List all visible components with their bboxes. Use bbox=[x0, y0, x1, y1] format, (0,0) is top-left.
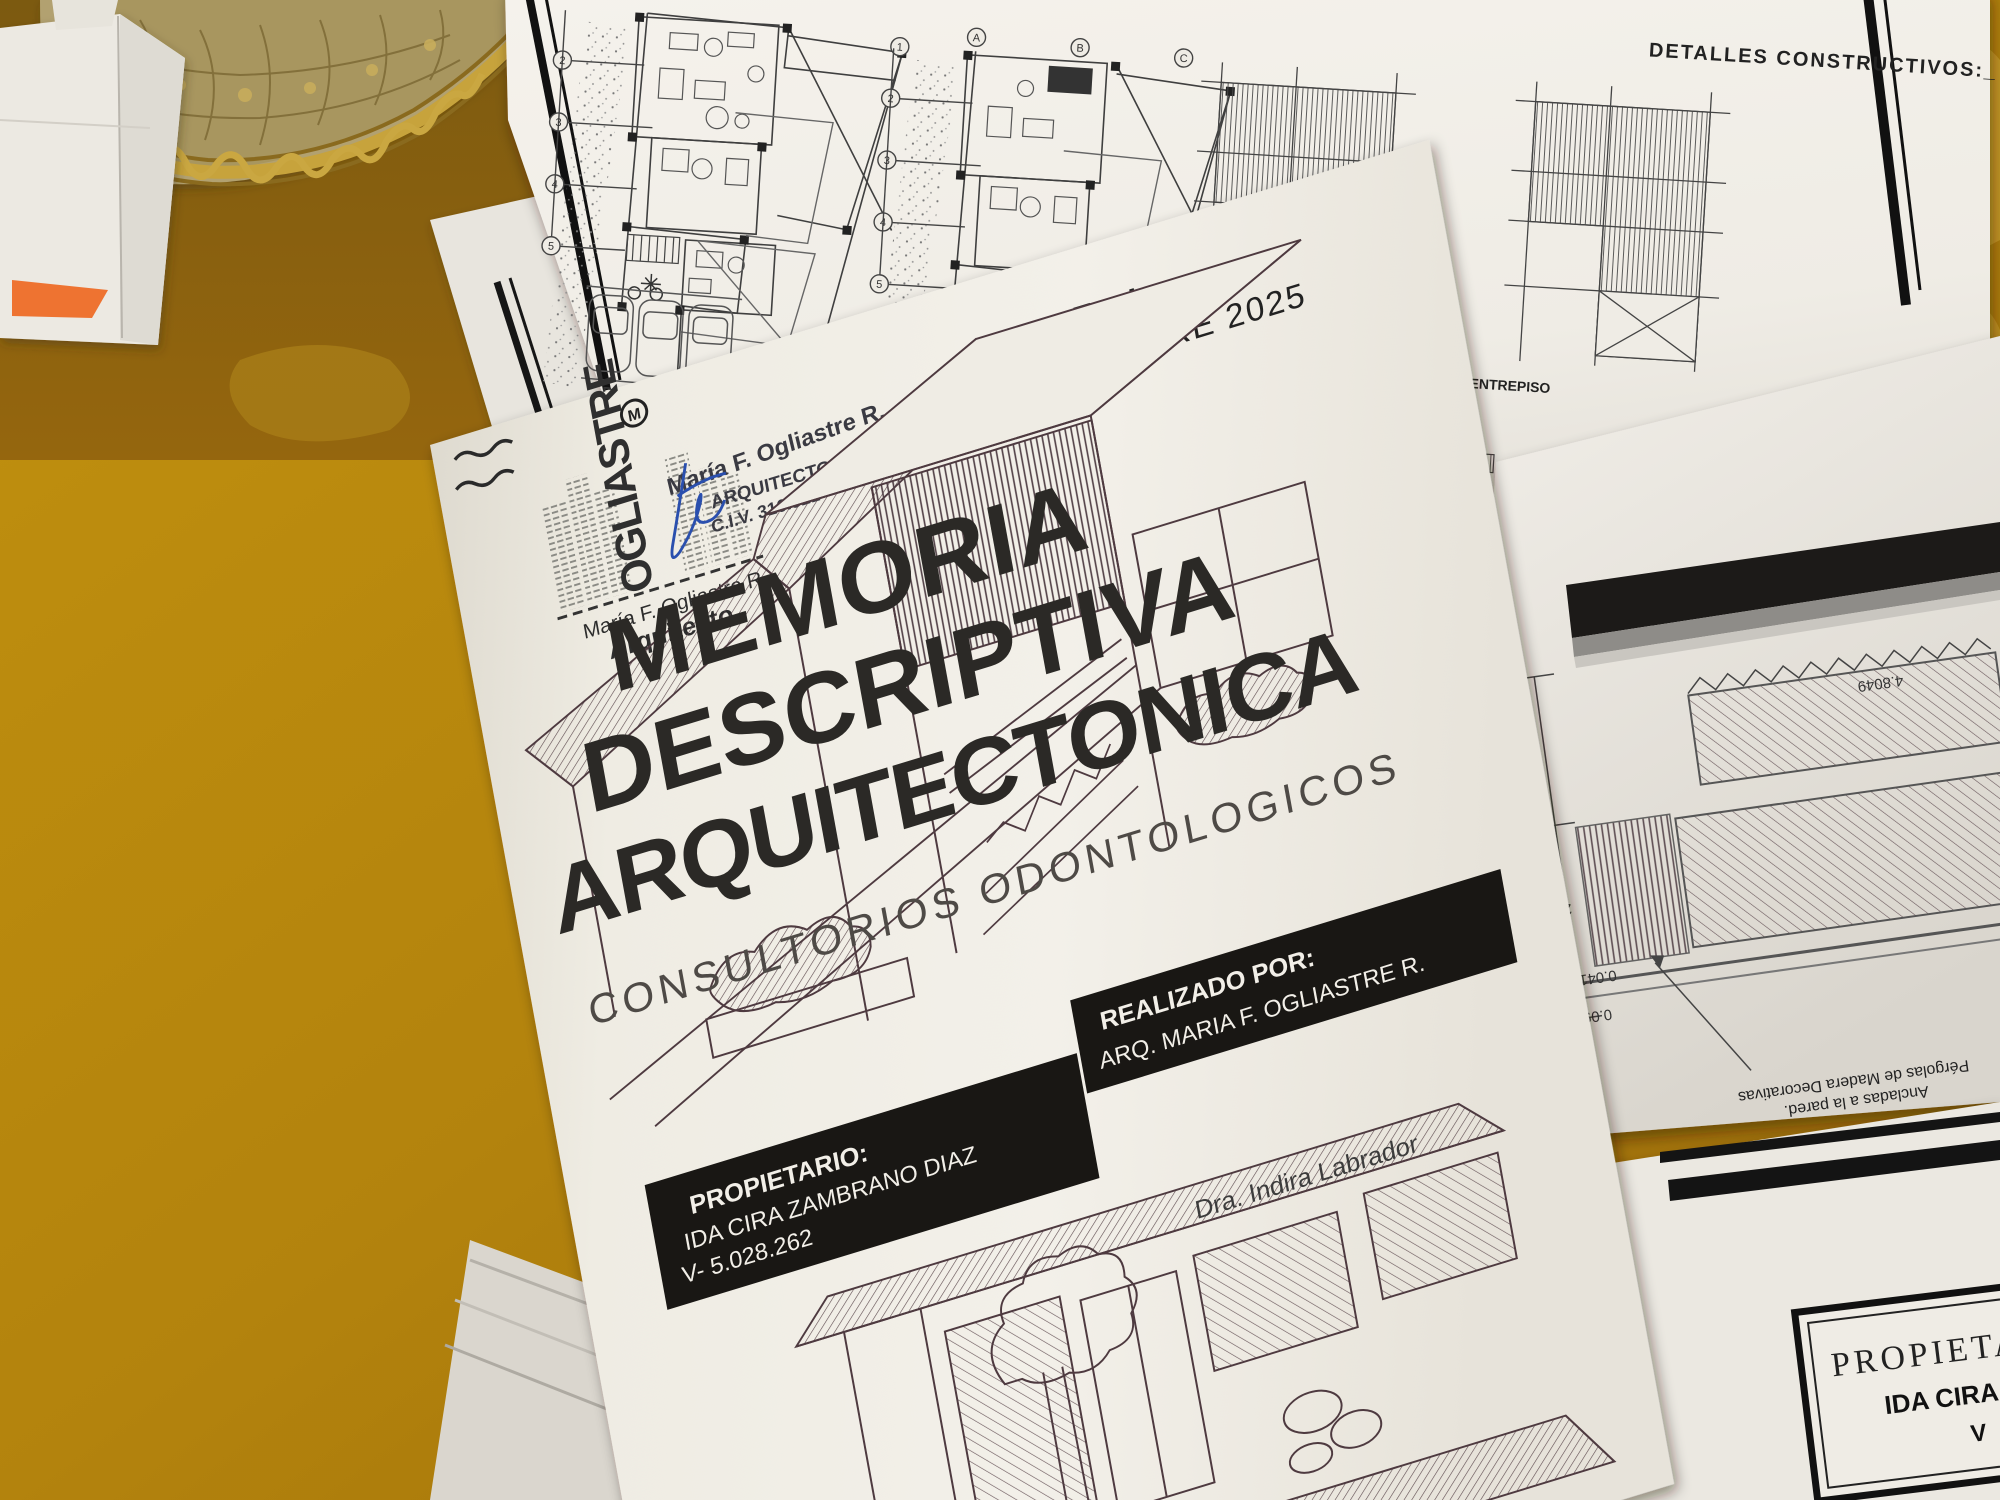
svg-text:C: C bbox=[1179, 53, 1188, 65]
svg-text:2: 2 bbox=[887, 93, 894, 105]
svg-text:5: 5 bbox=[876, 279, 883, 291]
svg-text:2: 2 bbox=[559, 55, 566, 67]
svg-text:4: 4 bbox=[551, 179, 558, 191]
svg-text:1: 1 bbox=[896, 41, 903, 53]
svg-text:B: B bbox=[1076, 42, 1084, 54]
svg-text:V: V bbox=[1969, 1419, 1988, 1448]
svg-text:A: A bbox=[972, 32, 981, 44]
svg-text:3: 3 bbox=[883, 155, 890, 167]
svg-text:3: 3 bbox=[555, 117, 562, 129]
svg-text:4: 4 bbox=[880, 217, 887, 229]
svg-text:5: 5 bbox=[548, 241, 555, 253]
